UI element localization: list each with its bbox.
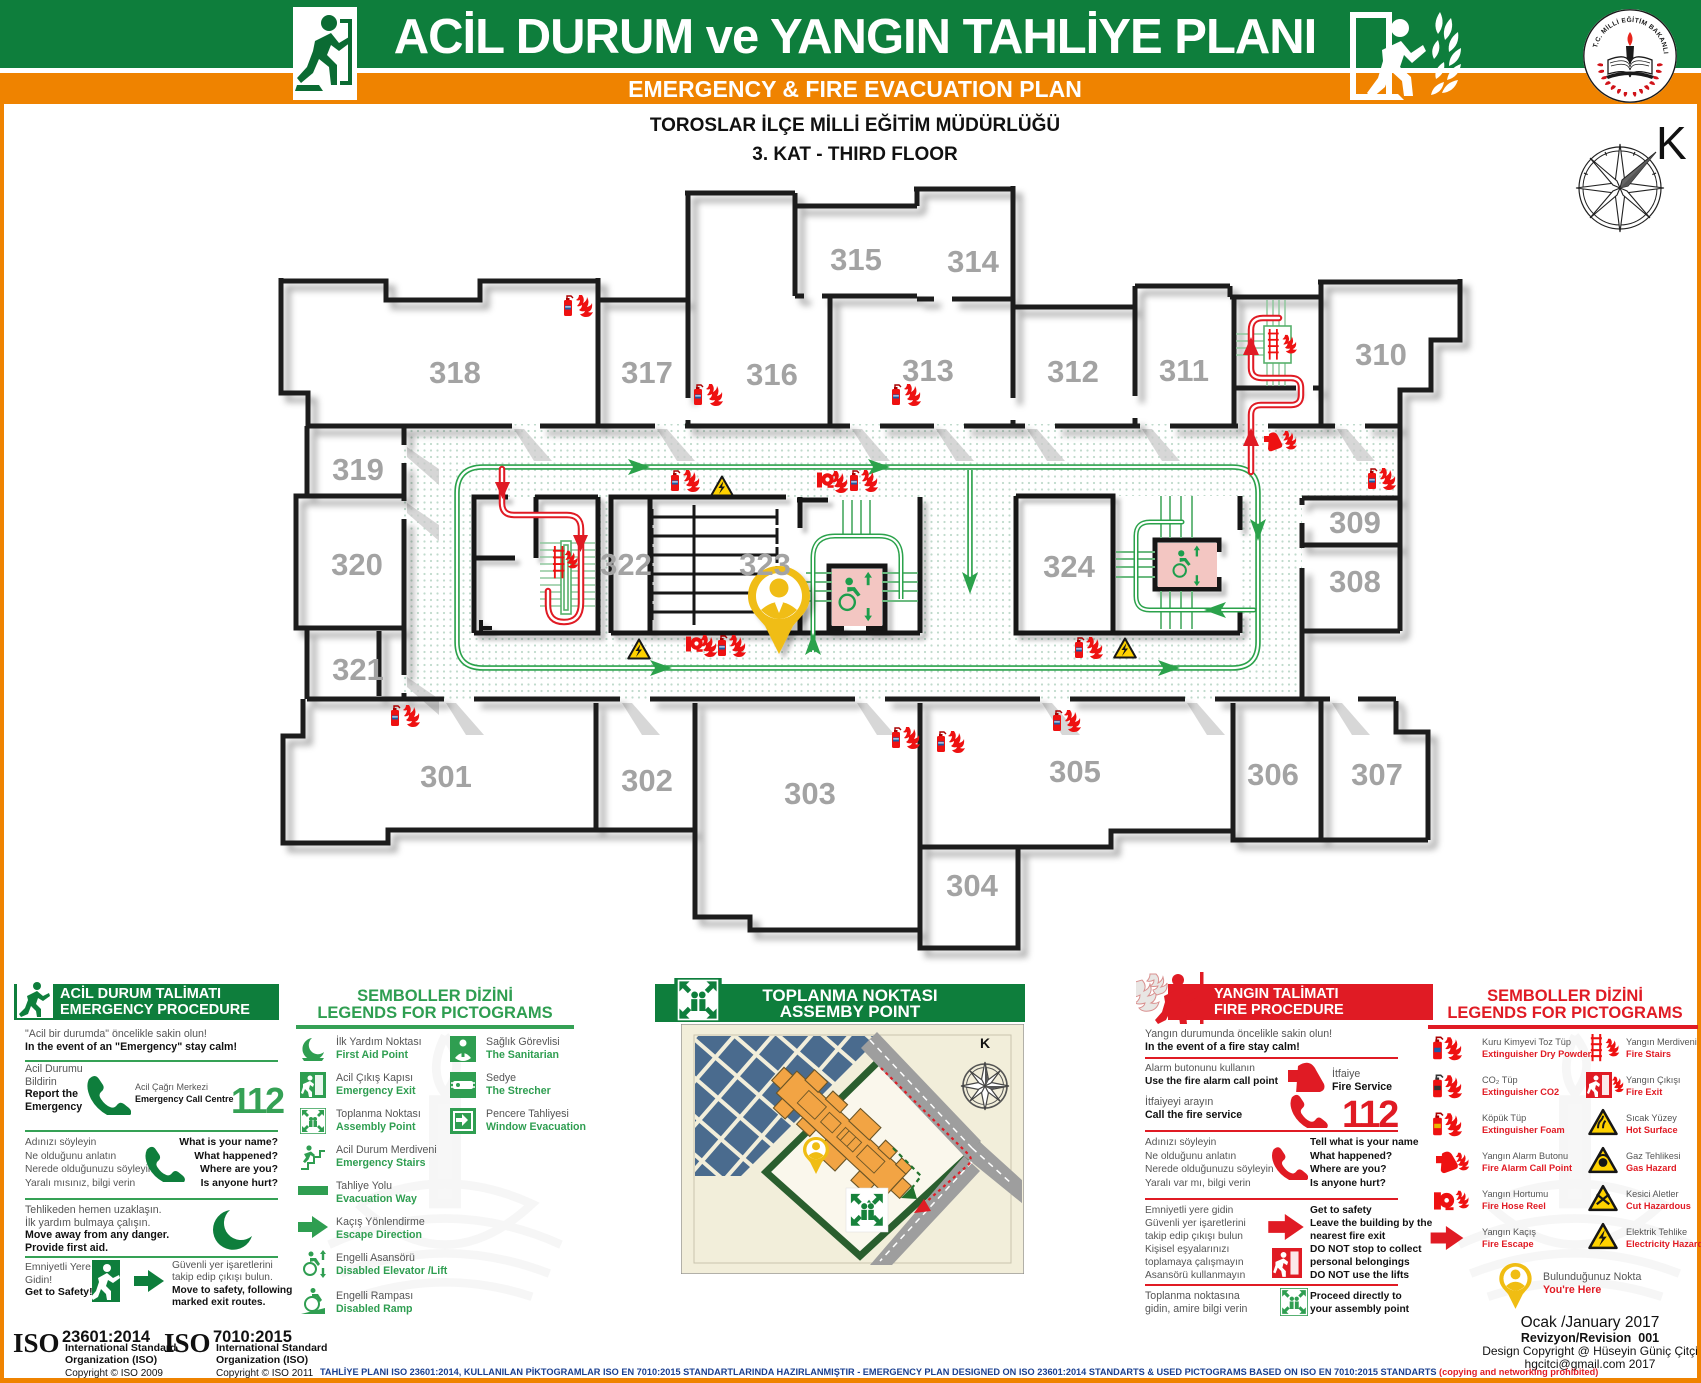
svg-text:K: K	[1656, 117, 1687, 169]
svg-text:313: 313	[902, 353, 954, 388]
svg-text:310: 310	[1355, 337, 1407, 372]
svg-text:304: 304	[946, 868, 998, 903]
svg-text:303: 303	[784, 776, 836, 811]
svg-text:317: 317	[621, 355, 673, 390]
svg-text:319: 319	[332, 452, 384, 487]
svg-text:306: 306	[1247, 757, 1299, 792]
svg-text:312: 312	[1047, 354, 1099, 389]
svg-text:318: 318	[429, 355, 481, 390]
svg-text:314: 314	[947, 244, 999, 279]
svg-text:311: 311	[1159, 353, 1209, 388]
svg-text:307: 307	[1351, 757, 1403, 792]
svg-text:321: 321	[332, 652, 384, 687]
svg-text:320: 320	[331, 547, 383, 582]
svg-text:K: K	[980, 1035, 990, 1051]
svg-text:322: 322	[600, 547, 652, 582]
svg-text:301: 301	[420, 759, 472, 794]
svg-text:309: 309	[1329, 505, 1381, 540]
svg-text:308: 308	[1329, 564, 1381, 599]
svg-text:316: 316	[746, 357, 798, 392]
svg-text:323: 323	[739, 547, 791, 582]
svg-text:302: 302	[621, 763, 673, 798]
svg-text:315: 315	[830, 242, 882, 277]
svg-text:324: 324	[1043, 549, 1095, 584]
svg-text:305: 305	[1049, 754, 1101, 789]
